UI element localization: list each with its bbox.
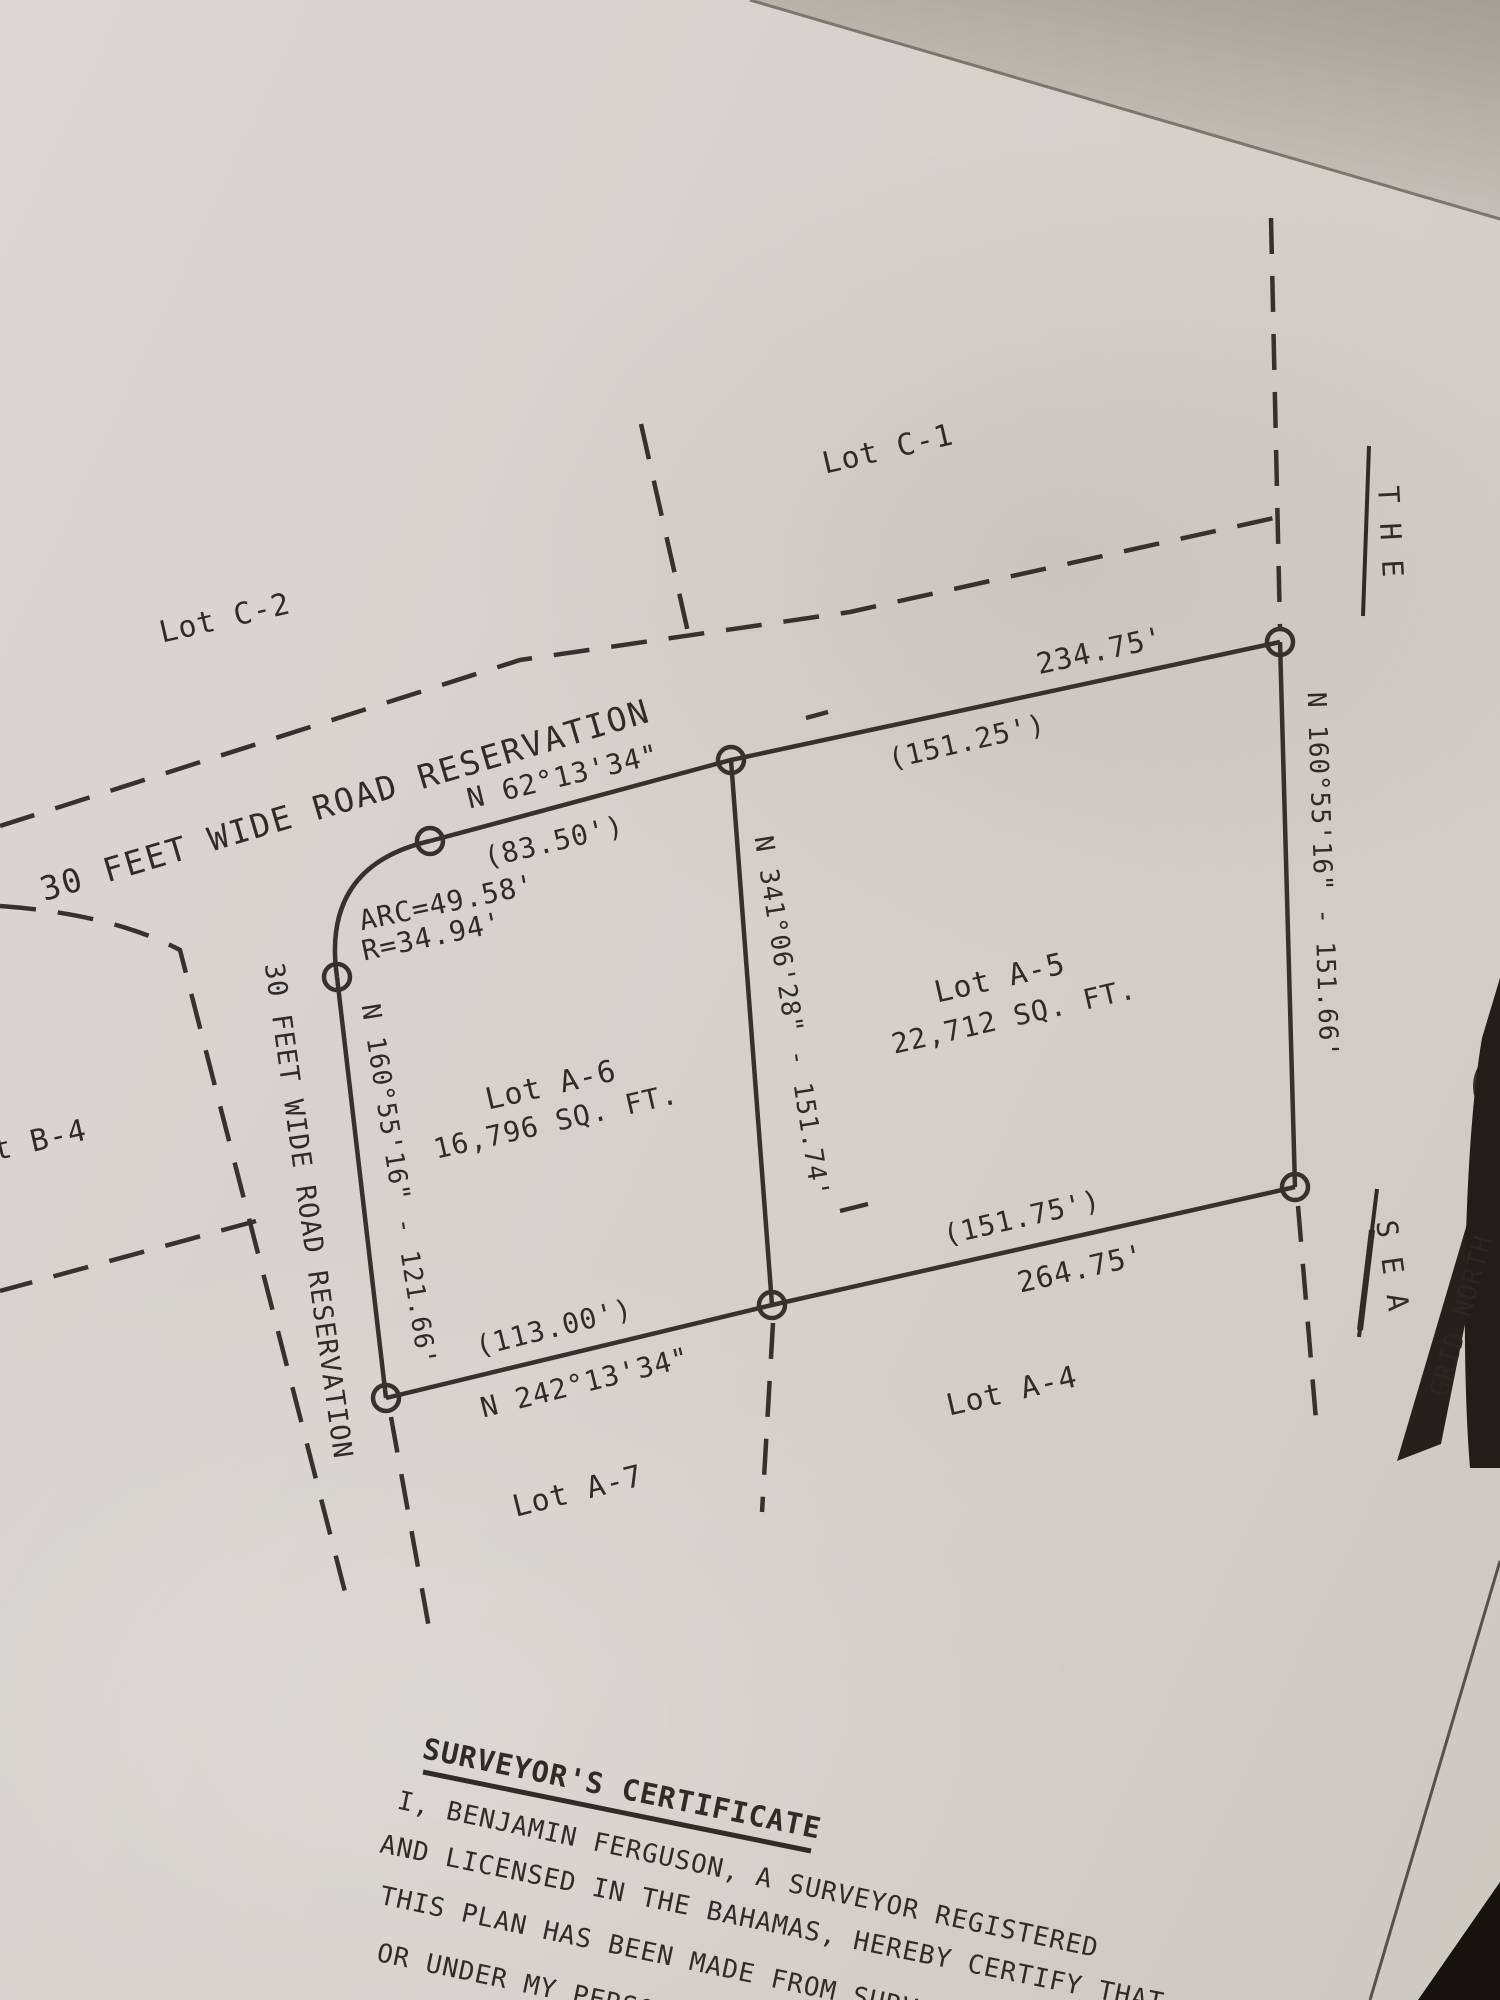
- survey-plan-photo: 30 FEET WIDE ROAD RESERVATION Lot C-2 Lo…: [0, 0, 1500, 2000]
- plat-drawing-layer: [0, 0, 1500, 2000]
- background-surface-right: [1465, 978, 1500, 1468]
- dashed-boundary-lines: [0, 218, 1316, 1628]
- the-sea-label-top: T H E: [1373, 485, 1407, 579]
- background-surface-bottom-right: [1418, 1882, 1500, 2000]
- label-underlines: [423, 446, 1377, 1851]
